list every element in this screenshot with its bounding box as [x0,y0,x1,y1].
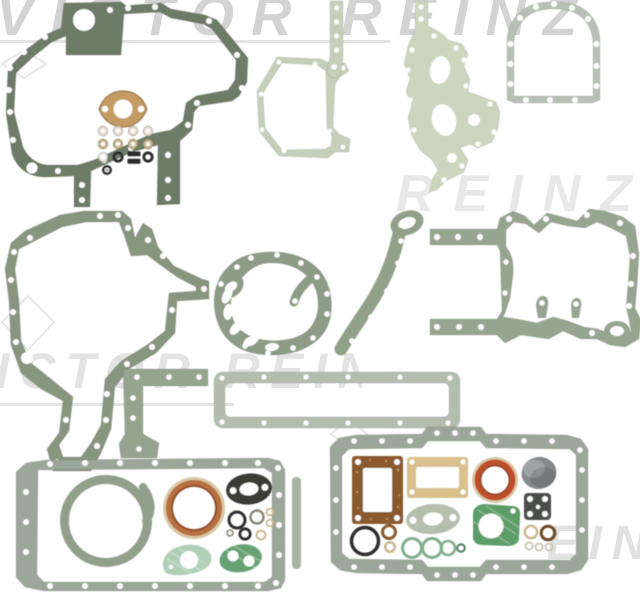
cup-plug [519,454,560,493]
green-square-gasket [473,504,520,546]
pump-gasket [214,252,332,356]
side-cover-frame-gasket [214,372,460,428]
cork-rect-gasket [352,456,403,524]
corner-gasket [119,369,208,458]
copper-flange-gasket [99,91,147,127]
strip-gasket [327,1,343,78]
arch-cover-gasket [507,1,600,103]
pale-oval-flange-gasket [405,502,461,536]
crank-seal-right [472,457,518,503]
timing-case-gasket [430,209,640,347]
mint-gasket [163,545,211,576]
o-ring-cluster-left [227,509,273,540]
gasket-parts-layer [0,0,640,595]
green-two-hole-gasket [220,544,262,572]
manila-rect-gasket [407,457,468,498]
seal-retainer-ring-gasket [60,475,152,567]
product-photo-page: { "canvas": { "width": 640, "height": 59… [0,0,640,595]
grommet [102,165,112,175]
black-oval-flange-gasket [225,471,274,507]
crescent-gasket [341,206,427,349]
edge-strip-gasket [292,477,301,569]
side-plate-gasket [404,1,500,192]
o-ring-cluster-right [352,526,555,558]
crank-seal-left [163,477,225,539]
gasket-set-photo: VICTOR REINZ VICTOR REINZ VICTOR REINZ V… [0,0,640,595]
rectangular-seals [128,152,141,164]
square-plate-gasket [524,493,551,520]
